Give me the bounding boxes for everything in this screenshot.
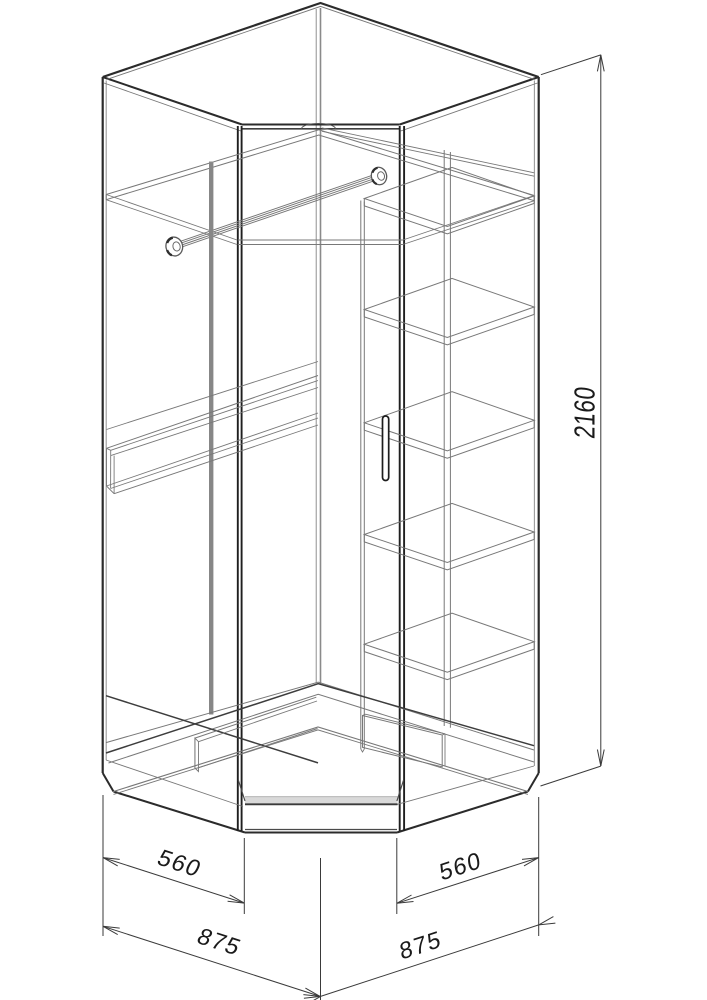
svg-text:2160: 2160 [568,385,601,441]
